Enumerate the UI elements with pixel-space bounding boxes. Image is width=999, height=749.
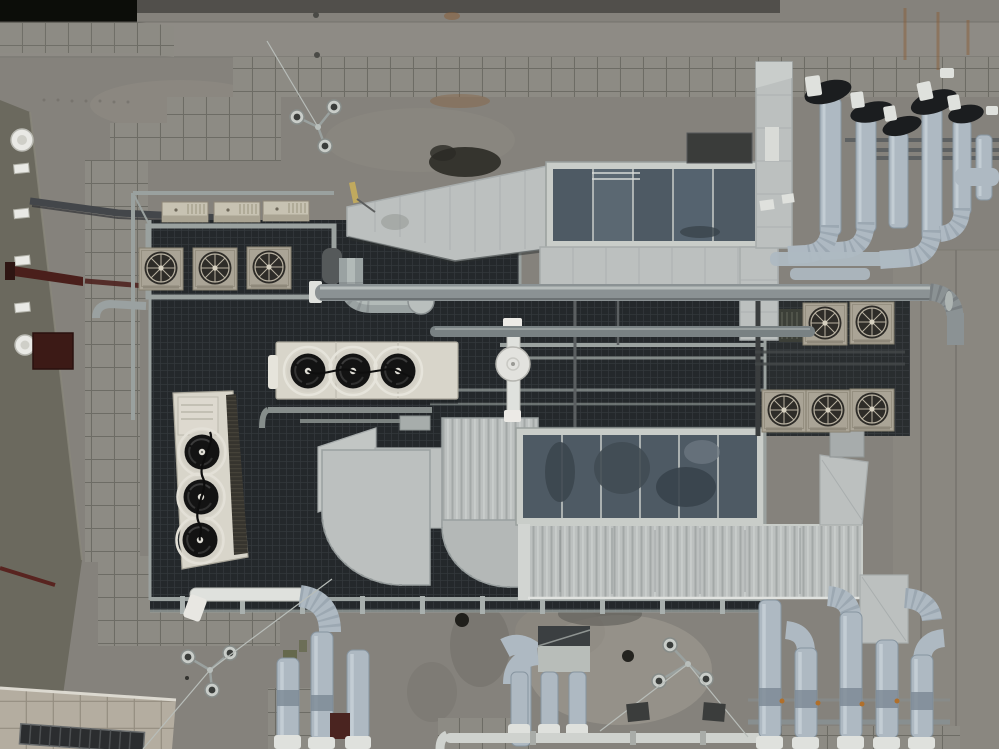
ahu-upper bbox=[546, 162, 762, 248]
ahu-lower bbox=[516, 428, 764, 525]
beige-vent-box bbox=[162, 202, 208, 222]
insulated-pipe bbox=[511, 672, 586, 728]
ac-condenser bbox=[193, 248, 237, 290]
rooftop-aerial-photo bbox=[0, 0, 999, 749]
intake-box bbox=[687, 133, 752, 163]
ac-condenser bbox=[247, 247, 291, 289]
ac-condenser bbox=[139, 248, 183, 290]
rooftop-photo-stage bbox=[0, 0, 999, 749]
ac-condenser bbox=[850, 389, 894, 431]
vertical-fan-unit bbox=[173, 391, 248, 569]
beige-vent-box bbox=[214, 202, 260, 222]
beige-vent-box bbox=[263, 201, 309, 221]
maroon-door bbox=[33, 333, 73, 369]
lower-roof bbox=[0, 688, 176, 749]
ac-condenser bbox=[762, 390, 806, 432]
ac-condenser bbox=[803, 303, 847, 345]
ac-condenser bbox=[806, 390, 850, 432]
ac-condenser bbox=[850, 302, 894, 344]
